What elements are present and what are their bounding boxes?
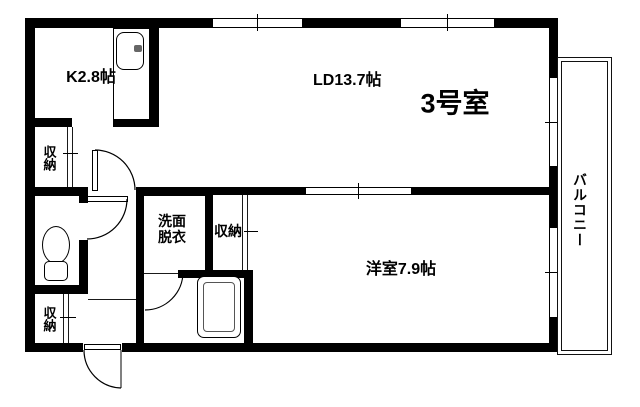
closet-bedroom-door-line [247,195,248,270]
sliding-door-tick [358,183,359,199]
wall-toilet-top [25,187,88,196]
western-room-label: 洋室7.9帖 [366,255,436,279]
closet-bedroom-door-line [242,195,243,270]
wall-bottom-left [25,343,83,352]
wall-bottom-right [122,343,558,352]
toilet-bowl-icon [42,226,70,264]
wall-closet-left [205,187,213,278]
wall-washroom-left [136,187,144,343]
closet-tick [60,317,76,318]
bath-threshold-line [144,273,178,274]
wall-left [25,18,35,352]
door-leaf-entrance [84,344,121,350]
door-leaf-hall [92,150,98,191]
closet-lower-door-line [68,294,69,343]
washroom-label-line1: 洗面 [158,213,186,229]
closet-upper-door-line [72,127,73,187]
wall-toilet-bottom [25,285,88,294]
wall-kitchen-bottom-left [25,118,72,127]
storage-mid-label: 収納 [214,221,242,241]
wall-ld-divider-right [412,187,549,195]
washroom-label: 洗面 脱衣 [158,213,186,245]
wall-washroom-top [136,187,213,196]
wall-kitchen-right [150,28,159,127]
storage-upper-label: 収納 [40,145,59,171]
window-tick [257,14,258,31]
wall-ld-divider-left [213,187,305,195]
wall-top-left [25,18,212,28]
storage-lower-label: 収納 [40,306,59,332]
living-dining-label: LD13.7帖 [313,66,381,90]
wall-top-middle [303,18,400,28]
door-arc-hall [95,150,135,190]
closet-tick [63,153,78,154]
closet-tick [244,231,258,232]
door-arc-entrance [84,350,121,388]
faucet-icon [134,45,142,52]
balcony-label: バルコニー [570,173,590,248]
floorplan: K2.8帖 LD13.7帖 3号室 洋室7.9帖 洗面 脱衣 収納 収納 収納 … [0,0,640,407]
washroom-label-line2: 脱衣 [158,229,186,245]
window-tick [447,14,448,31]
closet-upper-door-line [67,127,68,187]
closet-lower-door-line [63,294,64,343]
toilet-tank-icon [44,261,68,281]
unit-number-label: 3号室 [420,82,489,121]
door-arc-toilet [87,199,127,239]
wall-bath-right [244,270,253,343]
kitchen-label: K2.8帖 [66,63,116,87]
bathtub-inner [203,282,235,332]
genkan-step-line [88,299,136,300]
door-leaf-toilet [87,196,128,202]
